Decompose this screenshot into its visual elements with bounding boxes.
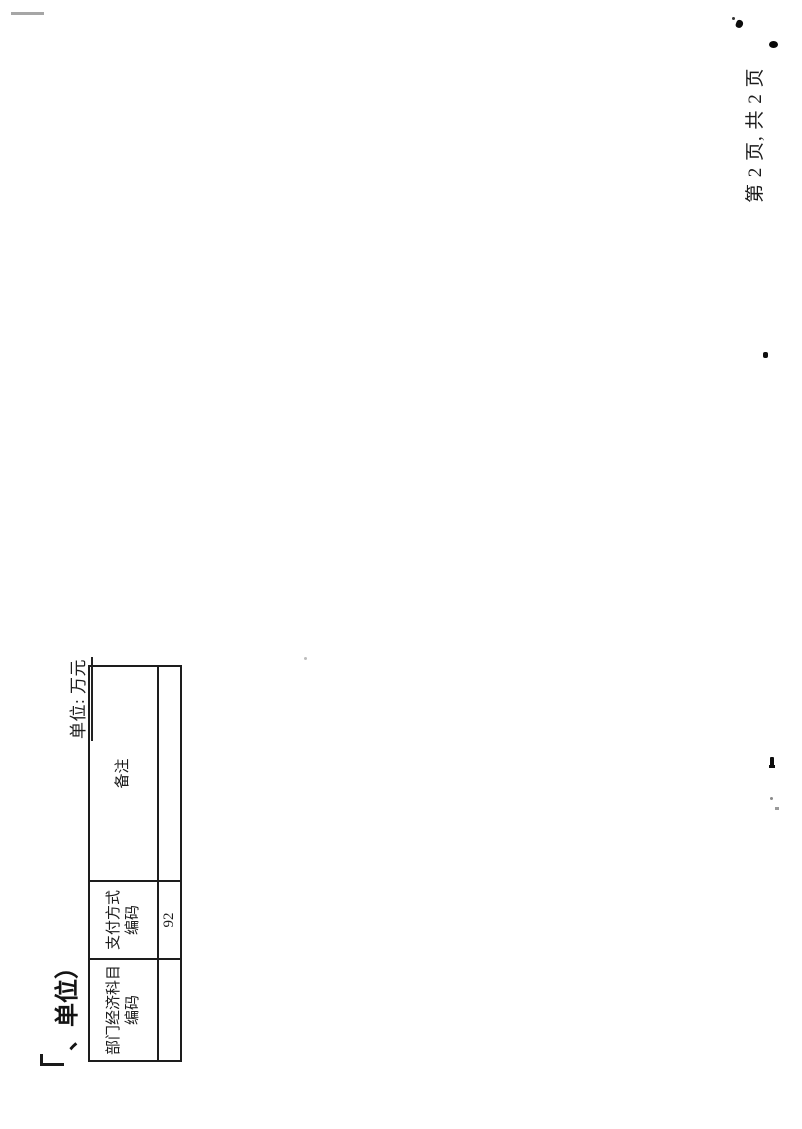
document-title-fragment: 、单位） [47, 955, 82, 1066]
data-cell-dept-econ-code [158, 959, 181, 1061]
data-cell-remarks [158, 666, 181, 881]
scan-speck [763, 352, 768, 358]
budget-table: 部门经济科目 编码 支付方式 编码 备注 92 [88, 665, 182, 1062]
scan-speck [770, 797, 773, 800]
page-number: 第 2 页, 共 2 页 [740, 67, 767, 203]
header-line: 支付方式 [105, 882, 124, 958]
header-line: 编码 [124, 960, 143, 1060]
scan-speck [775, 807, 779, 810]
table-header-row: 部门经济科目 编码 支付方式 编码 备注 [89, 666, 158, 1061]
header-cell-payment-method-code: 支付方式 编码 [89, 881, 158, 959]
header-line: 部门经济科目 [105, 960, 124, 1060]
scan-speck [769, 765, 775, 768]
header-cell-dept-econ-code: 部门经济科目 编码 [89, 959, 158, 1061]
scan-speck [304, 657, 307, 660]
document-content: 、单位） 单位: 万元 部门经济科目 编码 支付方式 编码 [0, 0, 802, 1129]
title-text: 、单位） [47, 955, 82, 1051]
scanned-page: 、单位） 单位: 万元 部门经济科目 编码 支付方式 编码 [0, 0, 802, 1129]
header-cell-remarks: 备注 [89, 666, 158, 881]
cutoff-character-fragment [40, 1054, 64, 1066]
scan-speck [769, 41, 778, 48]
header-line: 备注 [114, 667, 133, 880]
table-data-row: 92 [158, 666, 181, 1061]
data-cell-payment-method-code: 92 [158, 881, 181, 959]
scan-speck [732, 17, 735, 20]
header-line: 编码 [124, 882, 143, 958]
scan-artifact-line [11, 12, 44, 15]
